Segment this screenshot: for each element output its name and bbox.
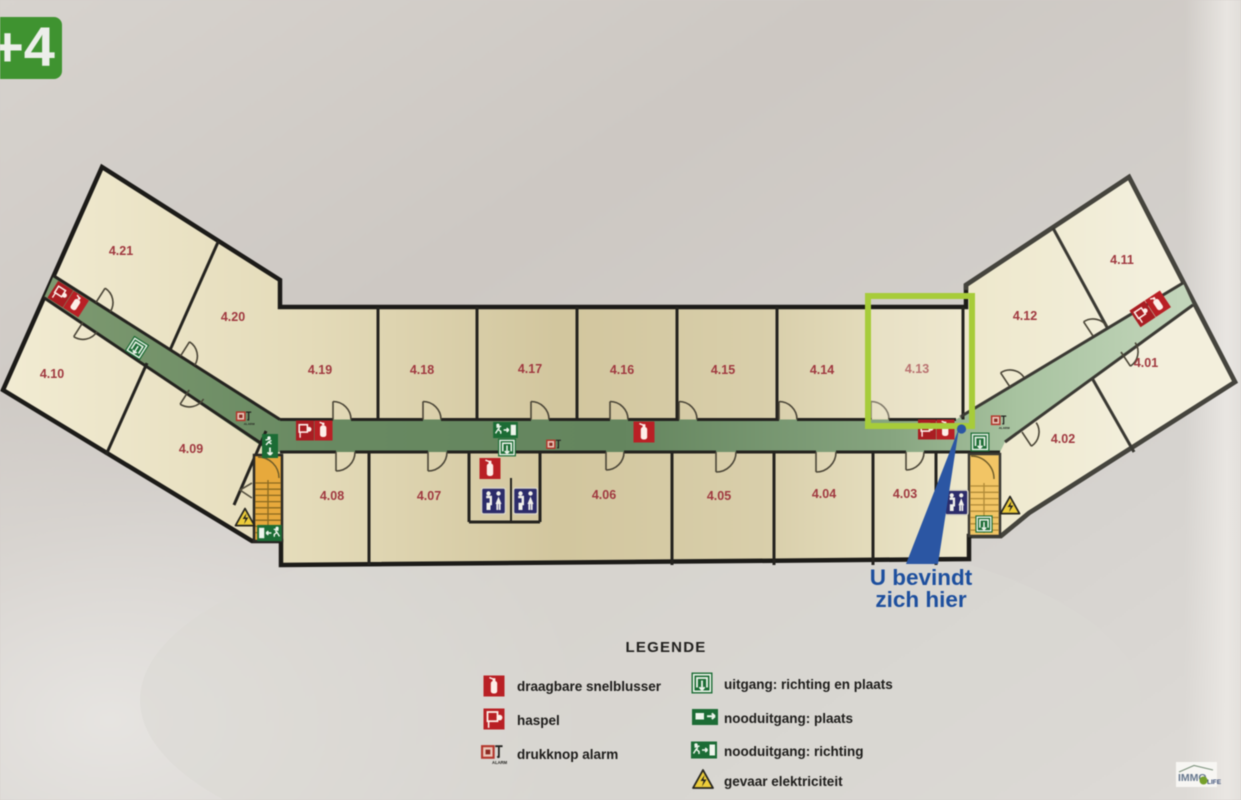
svg-text:ALARM: ALARM — [244, 422, 255, 426]
svg-text:draagbare snelblusser: draagbare snelblusser — [517, 679, 662, 694]
svg-text:4.21: 4.21 — [109, 244, 133, 258]
svg-text:4.05: 4.05 — [707, 489, 731, 503]
svg-text:4.03: 4.03 — [893, 487, 917, 501]
svg-text:4.14: 4.14 — [810, 363, 834, 377]
svg-text:4.08: 4.08 — [320, 489, 344, 503]
svg-text:4.01: 4.01 — [1134, 356, 1158, 370]
svg-text:ALARM: ALARM — [492, 760, 508, 765]
svg-text:4.16: 4.16 — [610, 363, 634, 377]
svg-text:ALARM: ALARM — [554, 450, 565, 454]
svg-text:zich hier: zich hier — [875, 587, 967, 612]
svg-text:4.18: 4.18 — [410, 363, 434, 377]
svg-text:4.15: 4.15 — [711, 363, 735, 377]
svg-text:uitgang: richting en plaats: uitgang: richting en plaats — [724, 677, 893, 692]
svg-text:gevaar elektriciteit: gevaar elektriciteit — [724, 774, 843, 789]
svg-text:drukknop alarm: drukknop alarm — [517, 747, 618, 762]
svg-text:4.04: 4.04 — [812, 487, 836, 501]
svg-text:4.10: 4.10 — [40, 367, 64, 381]
svg-text:nooduitgang: richting: nooduitgang: richting — [724, 744, 863, 759]
svg-text:4.06: 4.06 — [592, 488, 616, 502]
svg-text:4.11: 4.11 — [1110, 253, 1134, 267]
svg-text:nooduitgang: plaats: nooduitgang: plaats — [724, 711, 853, 726]
svg-text:4.17: 4.17 — [518, 362, 542, 376]
svg-text:ALARM: ALARM — [999, 426, 1010, 430]
svg-text:haspel: haspel — [517, 713, 560, 728]
svg-text:4.07: 4.07 — [417, 489, 441, 503]
svg-text:4.02: 4.02 — [1051, 432, 1075, 446]
svg-text:+4: +4 — [0, 15, 55, 78]
svg-text:LIFE: LIFE — [1207, 779, 1222, 786]
svg-text:LEGENDE: LEGENDE — [626, 639, 707, 656]
svg-text:4.19: 4.19 — [308, 363, 332, 377]
svg-text:4.20: 4.20 — [221, 310, 245, 324]
svg-text:4.09: 4.09 — [179, 442, 203, 456]
svg-text:4.12: 4.12 — [1013, 309, 1037, 323]
